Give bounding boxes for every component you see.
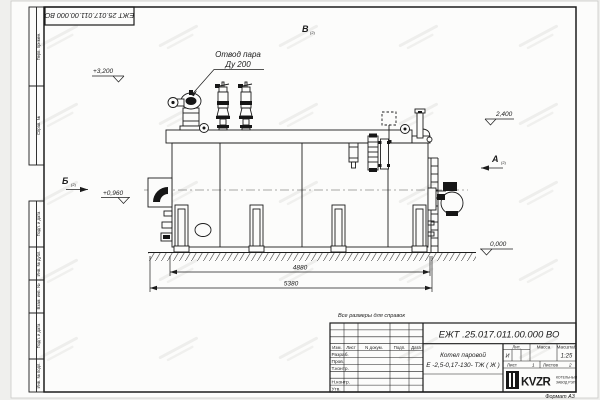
svg-text:Масса: Масса <box>537 344 551 349</box>
svg-text:Утв.: Утв. <box>332 387 341 393</box>
svg-text:+0,960: +0,960 <box>103 190 123 197</box>
svg-text:Разраб.: Разраб. <box>332 352 349 358</box>
svg-text:(2): (2) <box>310 30 316 35</box>
kvzr-logo-mark <box>506 371 519 389</box>
svg-text:Листов: Листов <box>543 363 558 368</box>
strip-label: Справ. № <box>36 115 41 135</box>
scale-value: 1:25 <box>561 354 573 360</box>
svg-text:Н.контр.: Н.контр. <box>332 380 350 386</box>
svg-text:N докум.: N докум. <box>365 345 383 350</box>
product-name-line1: Котел паровой <box>440 351 486 359</box>
strip-label: Перв. примен. <box>36 33 41 61</box>
svg-text:Лист: Лист <box>507 363 518 368</box>
strip-label: Подп. и дата <box>36 211 41 236</box>
svg-text:Дата: Дата <box>411 345 421 350</box>
support-leg <box>174 205 189 252</box>
stamp-doc-number: ЕЖТ 25.017.011.00.000 ВО <box>44 11 134 20</box>
doc-number: ЕЖТ .25.017.011.00.000 ВО <box>439 330 560 341</box>
drawing-sheet-page: { "sheet": { "stamp_top_left": "ЕЖТ 25.0… <box>0 0 600 400</box>
svg-text:+3,200: +3,200 <box>93 68 113 75</box>
svg-text:Масштаб: Масштаб <box>557 344 577 349</box>
kvzr-logo-sub2: ЗАВОД РЭП <box>556 381 576 385</box>
svg-text:1: 1 <box>532 363 535 368</box>
svg-text:Лист: Лист <box>346 345 356 350</box>
strip-label: Инв. № подл. <box>36 362 41 388</box>
kvzr-logo-text: KVZR <box>521 377 552 389</box>
svg-text:(2): (2) <box>71 182 77 187</box>
support-leg <box>412 205 427 252</box>
boiler-drawing-canvas: Перв. примен. Справ. № Подп. и дата Инв.… <box>0 0 600 400</box>
callout-line1: Отвод пара <box>215 50 261 59</box>
callout-line2: Ду 200 <box>224 60 251 69</box>
dim-inner-length: 4880 <box>293 265 308 272</box>
svg-text:2: 2 <box>568 363 572 368</box>
svg-text:Подп.: Подп. <box>394 345 406 350</box>
kvzr-logo-sub1: КОТЕЛЬНЫЙ <box>556 376 578 380</box>
ground-hatch <box>148 253 476 261</box>
strip-label: Инв. № дубл. <box>36 251 41 277</box>
svg-text:2,400: 2,400 <box>495 111 513 118</box>
reference-note: Все размеры для справок <box>338 313 405 319</box>
format-label: Формат А3 <box>545 394 575 400</box>
strip-label: Взам. инв. № <box>36 283 41 309</box>
round-fitting <box>401 125 410 134</box>
svg-text:В: В <box>302 24 309 34</box>
svg-text:(2): (2) <box>501 160 507 165</box>
svg-text:Т.контр.: Т.контр. <box>332 366 349 372</box>
svg-text:Б: Б <box>62 176 69 186</box>
drum-fitting <box>200 124 209 133</box>
product-name-line2: Е -2,5-0,17-130- ТЖ ( Ж ) <box>426 362 500 369</box>
svg-text:Изм.: Изм. <box>332 345 341 350</box>
strip-label: Подп. и дата <box>36 323 41 348</box>
svg-text:0,000: 0,000 <box>490 241 507 248</box>
dim-overall-length: 5380 <box>284 281 299 288</box>
svg-text:Пров.: Пров. <box>332 359 345 365</box>
svg-text:Лит.: Лит. <box>512 344 521 349</box>
svg-text:А: А <box>491 154 499 164</box>
lit-value: И <box>506 354 510 360</box>
support-leg <box>249 205 264 252</box>
support-leg <box>331 205 346 252</box>
